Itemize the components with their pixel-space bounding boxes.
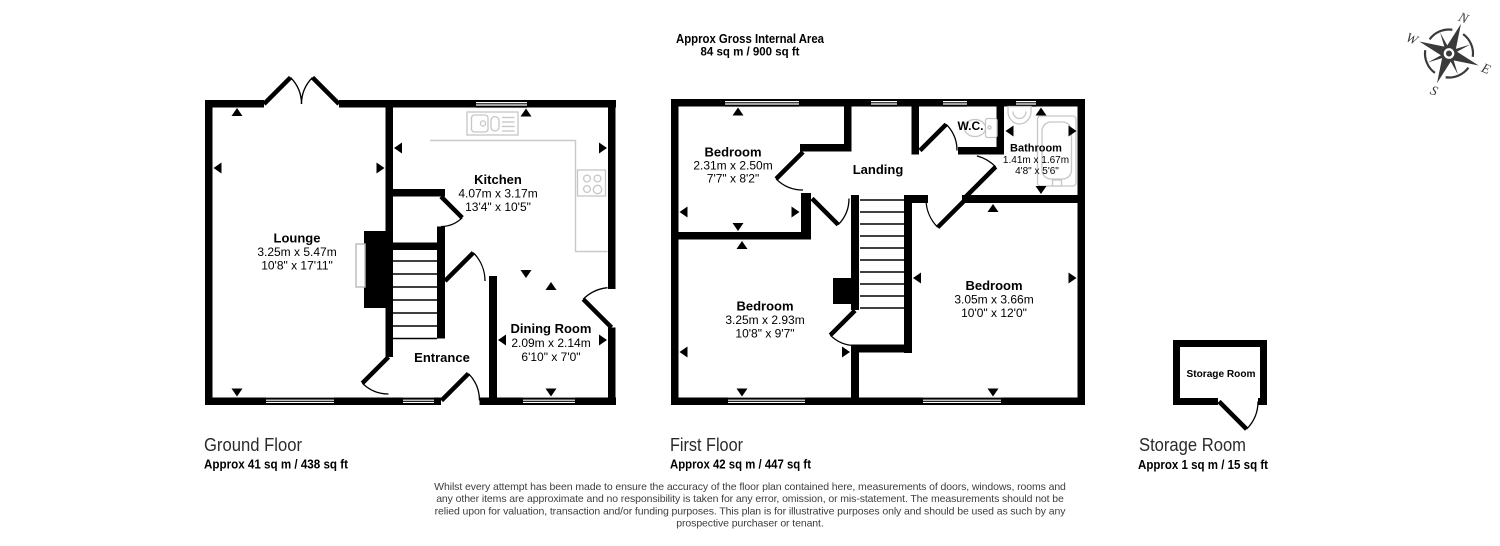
svg-text:Approx 1 sq m / 15 sq ft: Approx 1 sq m / 15 sq ft [1138, 458, 1269, 472]
svg-text:4'8" x 5'6": 4'8" x 5'6" [1015, 166, 1059, 177]
svg-text:prospective purchaser or tenan: prospective purchaser or tenant. [676, 518, 823, 530]
svg-text:13'4" x 10'5": 13'4" x 10'5" [465, 200, 531, 214]
svg-text:Whilst every attempt has been: Whilst every attempt has been made to en… [434, 481, 1066, 493]
svg-text:Ground Floor: Ground Floor [204, 435, 302, 455]
svg-text:Bedroom: Bedroom [736, 299, 793, 314]
svg-text:2.31m x 2.50m: 2.31m x 2.50m [693, 159, 772, 173]
svg-text:2.09m x 2.14m: 2.09m x 2.14m [511, 336, 590, 350]
svg-text:Bathroom: Bathroom [1010, 143, 1062, 155]
svg-text:relied upon for valuation, tra: relied upon for valuation, transaction a… [435, 505, 1067, 517]
svg-text:1.41m x 1.67m: 1.41m x 1.67m [1003, 155, 1069, 166]
svg-text:6'10" x 7'0": 6'10" x 7'0" [521, 350, 580, 364]
svg-text:10'8" x 9'7": 10'8" x 9'7" [735, 327, 794, 341]
svg-text:10'8" x 17'11": 10'8" x 17'11" [261, 259, 333, 273]
svg-text:Approx 42 sq m / 447 sq ft: Approx 42 sq m / 447 sq ft [670, 458, 812, 472]
svg-text:Lounge: Lounge [274, 231, 321, 246]
svg-text:Kitchen: Kitchen [474, 172, 522, 187]
svg-text:3.05m x 3.66m: 3.05m x 3.66m [954, 293, 1033, 307]
svg-text:Bedroom: Bedroom [965, 278, 1022, 293]
svg-text:Bedroom: Bedroom [704, 145, 761, 160]
svg-text:Approx 41 sq m / 438 sq ft: Approx 41 sq m / 438 sq ft [204, 458, 349, 472]
svg-text:Storage Room: Storage Room [1139, 435, 1246, 455]
svg-text:Landing: Landing [853, 162, 904, 177]
svg-text:84 sq m / 900 sq ft: 84 sq m / 900 sq ft [701, 45, 800, 59]
svg-text:4.07m x 3.17m: 4.07m x 3.17m [458, 187, 537, 201]
svg-text:3.25m x 2.93m: 3.25m x 2.93m [725, 313, 804, 327]
svg-text:Storage Room: Storage Room [1187, 368, 1256, 380]
svg-text:7'7" x 8'2": 7'7" x 8'2" [707, 172, 759, 186]
svg-text:any other items are approximat: any other items are approximate and no r… [436, 493, 1064, 505]
svg-text:Dining Room: Dining Room [511, 321, 592, 336]
svg-text:3.25m x 5.47m: 3.25m x 5.47m [257, 245, 336, 259]
svg-text:W.C.: W.C. [958, 119, 984, 133]
svg-text:10'0" x 12'0": 10'0" x 12'0" [961, 306, 1027, 320]
svg-text:Entrance: Entrance [414, 350, 470, 365]
svg-text:First Floor: First Floor [670, 435, 743, 455]
